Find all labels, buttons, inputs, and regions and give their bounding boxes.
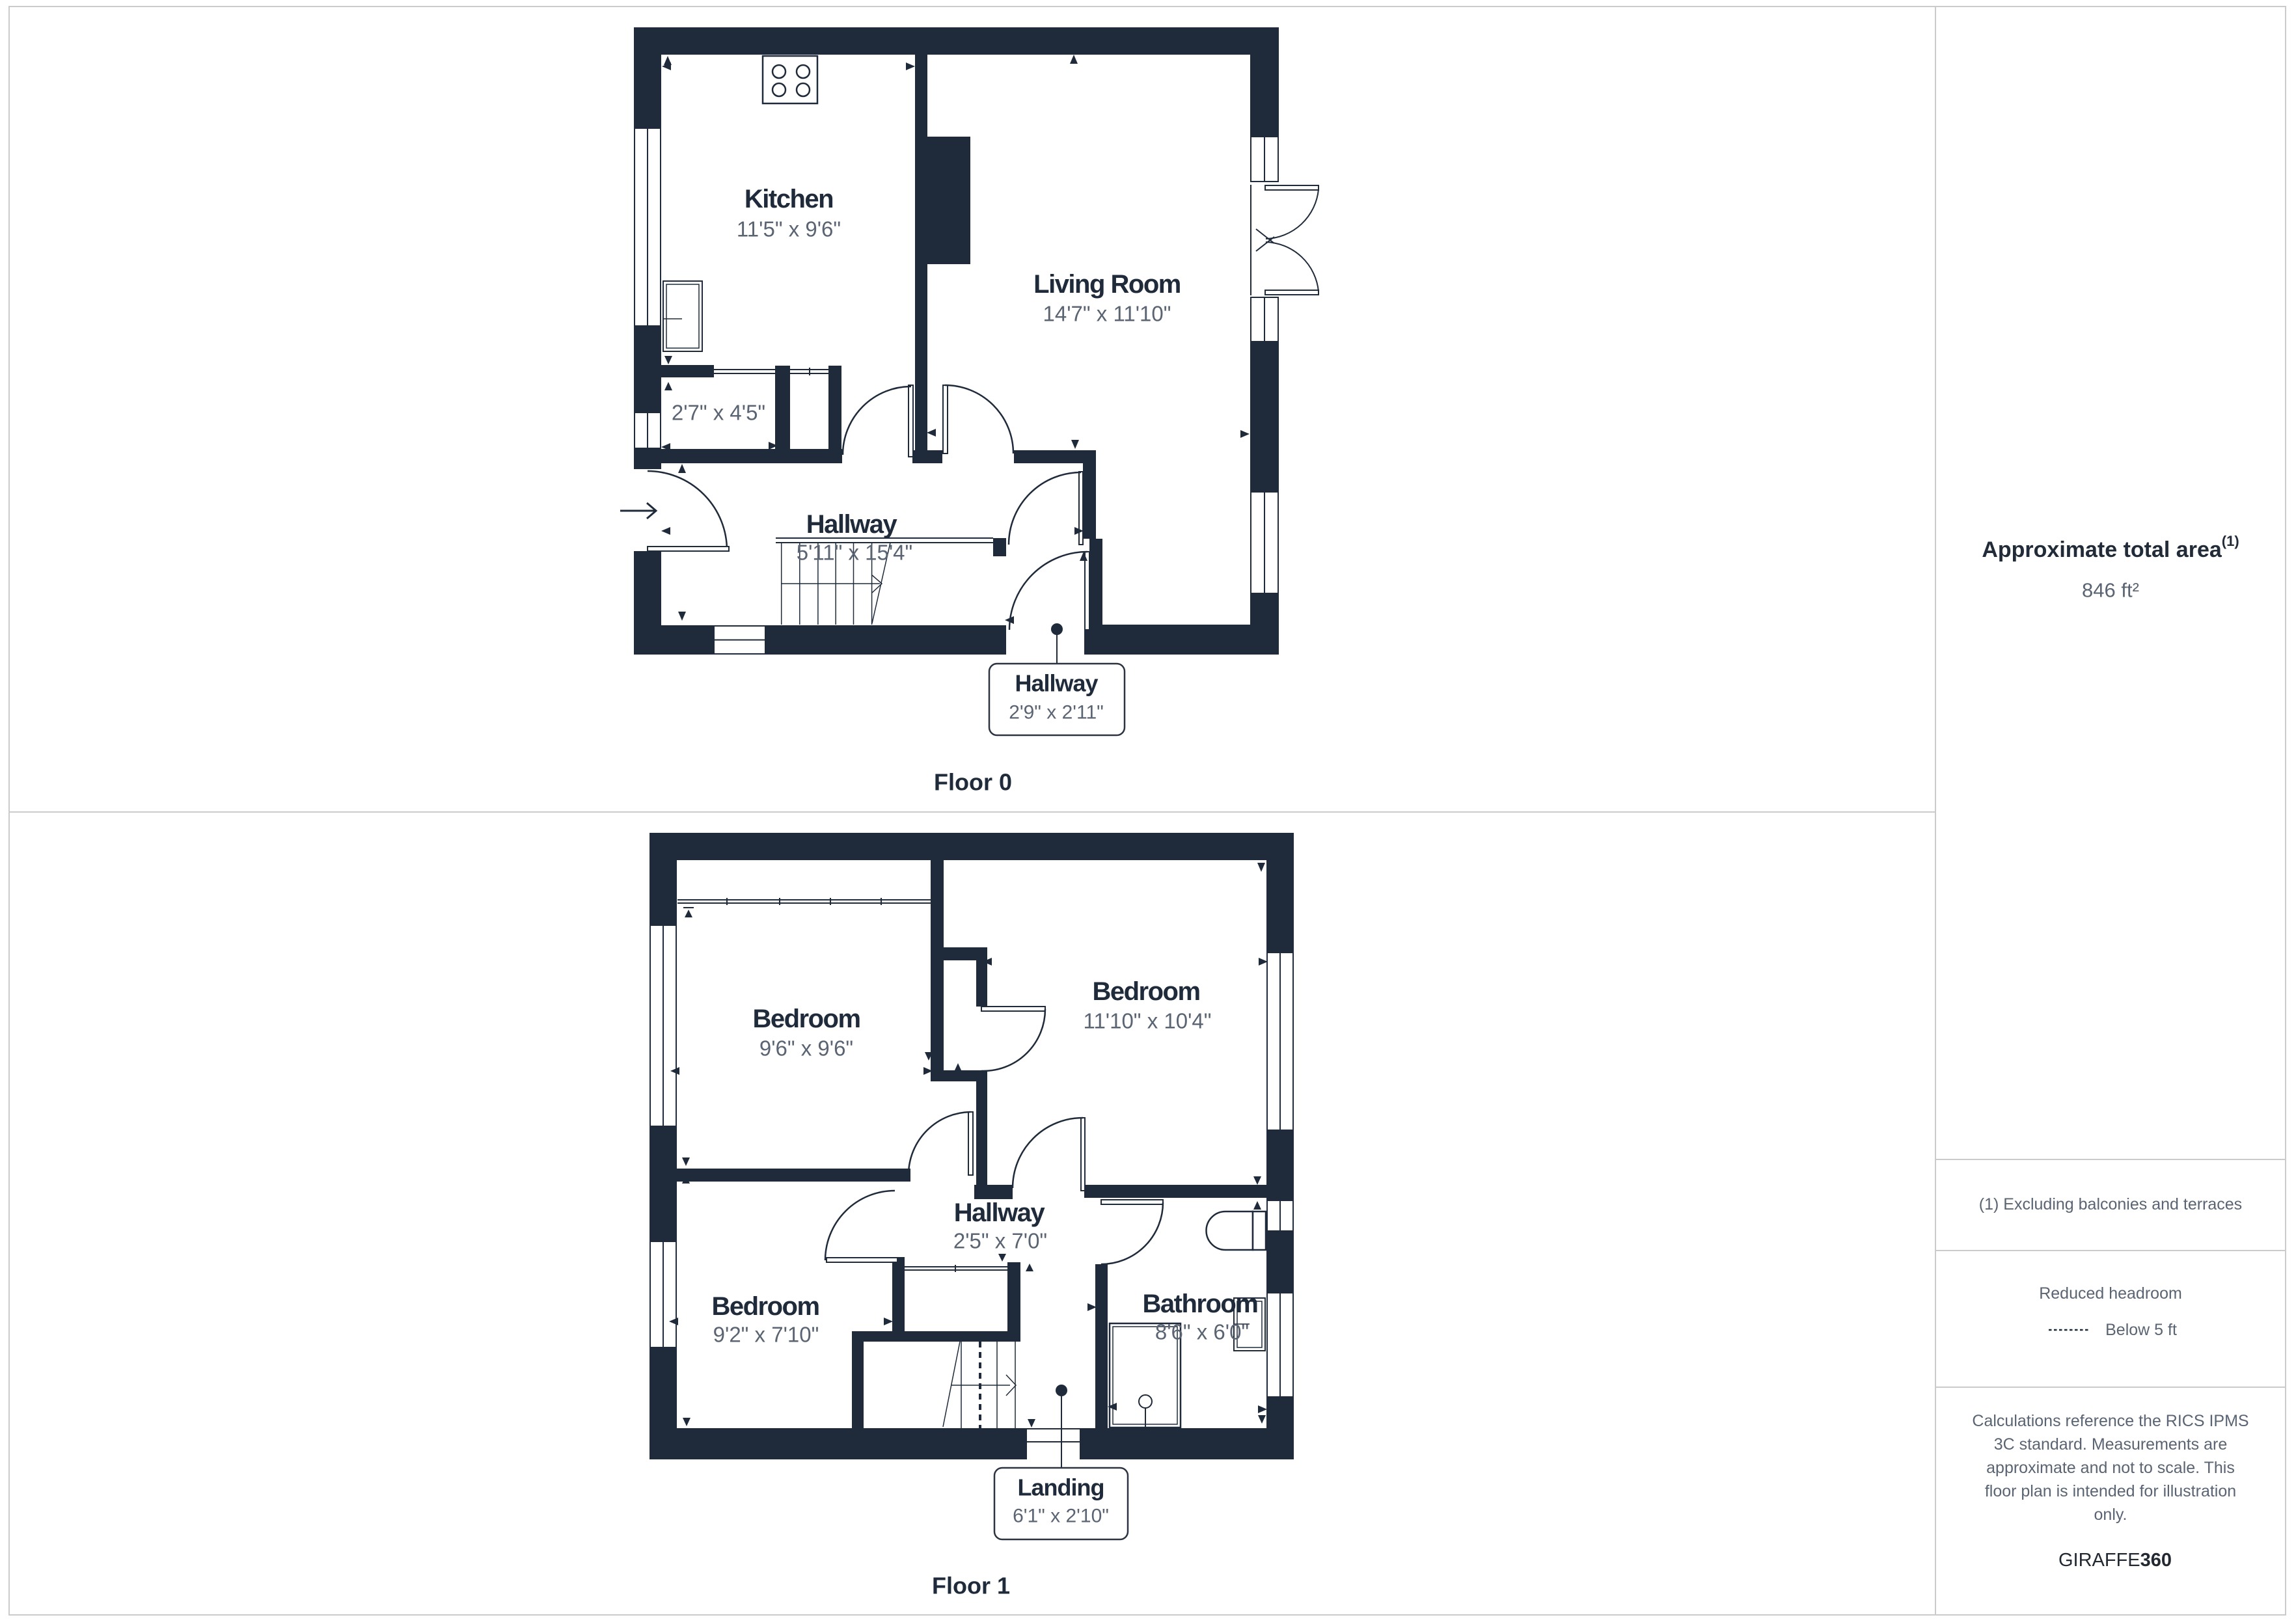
svg-text:5'11" x 15'4": 5'11" x 15'4"	[797, 541, 913, 565]
svg-text:Floor 0: Floor 0	[934, 769, 1012, 796]
svg-text:Kitchen: Kitchen	[745, 185, 833, 213]
svg-text:Bathroom: Bathroom	[1143, 1290, 1258, 1318]
svg-text:6'1" x 2'10": 6'1" x 2'10"	[1013, 1506, 1109, 1527]
svg-text:Hallway: Hallway	[954, 1198, 1046, 1227]
svg-text:Bedroom: Bedroom	[1092, 977, 1199, 1006]
svg-text:Hallway: Hallway	[806, 510, 898, 539]
svg-text:9'2" x 7'10": 9'2" x 7'10"	[713, 1323, 819, 1347]
svg-text:Below 5 ft: Below 5 ft	[2105, 1321, 2177, 1339]
svg-text:3C standard. Measurements are: 3C standard. Measurements are	[1994, 1435, 2228, 1454]
svg-text:9'6" x 9'6": 9'6" x 9'6"	[759, 1036, 853, 1061]
svg-text:floor plan is intended for ill: floor plan is intended for illustration	[1985, 1482, 2236, 1500]
svg-text:2'7" x 4'5": 2'7" x 4'5"	[672, 401, 765, 425]
svg-text:2'9" x 2'11": 2'9" x 2'11"	[1009, 702, 1104, 724]
svg-text:8'6" x 6'0": 8'6" x 6'0"	[1155, 1320, 1249, 1344]
svg-text:11'10" x 10'4": 11'10" x 10'4"	[1084, 1009, 1212, 1033]
svg-text:2'5" x 7'0": 2'5" x 7'0"	[953, 1229, 1047, 1253]
svg-text:846 ft²: 846 ft²	[2082, 579, 2139, 602]
svg-text:Bedroom: Bedroom	[711, 1292, 819, 1321]
svg-text:Floor 1: Floor 1	[932, 1573, 1010, 1599]
svg-text:approximate and not to scale.: approximate and not to scale. This	[1986, 1459, 2235, 1477]
svg-text:Living Room: Living Room	[1033, 270, 1181, 299]
svg-text:Bedroom: Bedroom	[752, 1005, 860, 1033]
svg-text:Calculations reference the RIC: Calculations reference the RICS IPMS	[1972, 1412, 2248, 1430]
svg-text:(1) Excluding balconies and te: (1) Excluding balconies and terraces	[1979, 1195, 2242, 1213]
svg-text:Reduced headroom: Reduced headroom	[2039, 1284, 2182, 1303]
svg-text:GIRAFFE360: GIRAFFE360	[2058, 1550, 2172, 1571]
svg-text:11'5" x 9'6": 11'5" x 9'6"	[737, 217, 841, 241]
svg-text:14'7" x 11'10": 14'7" x 11'10"	[1043, 302, 1171, 326]
svg-text:Landing: Landing	[1018, 1474, 1104, 1501]
svg-text:Approximate total area(1): Approximate total area(1)	[1982, 533, 2239, 563]
svg-text:only.: only.	[2094, 1506, 2127, 1524]
svg-text:Hallway: Hallway	[1015, 670, 1098, 697]
